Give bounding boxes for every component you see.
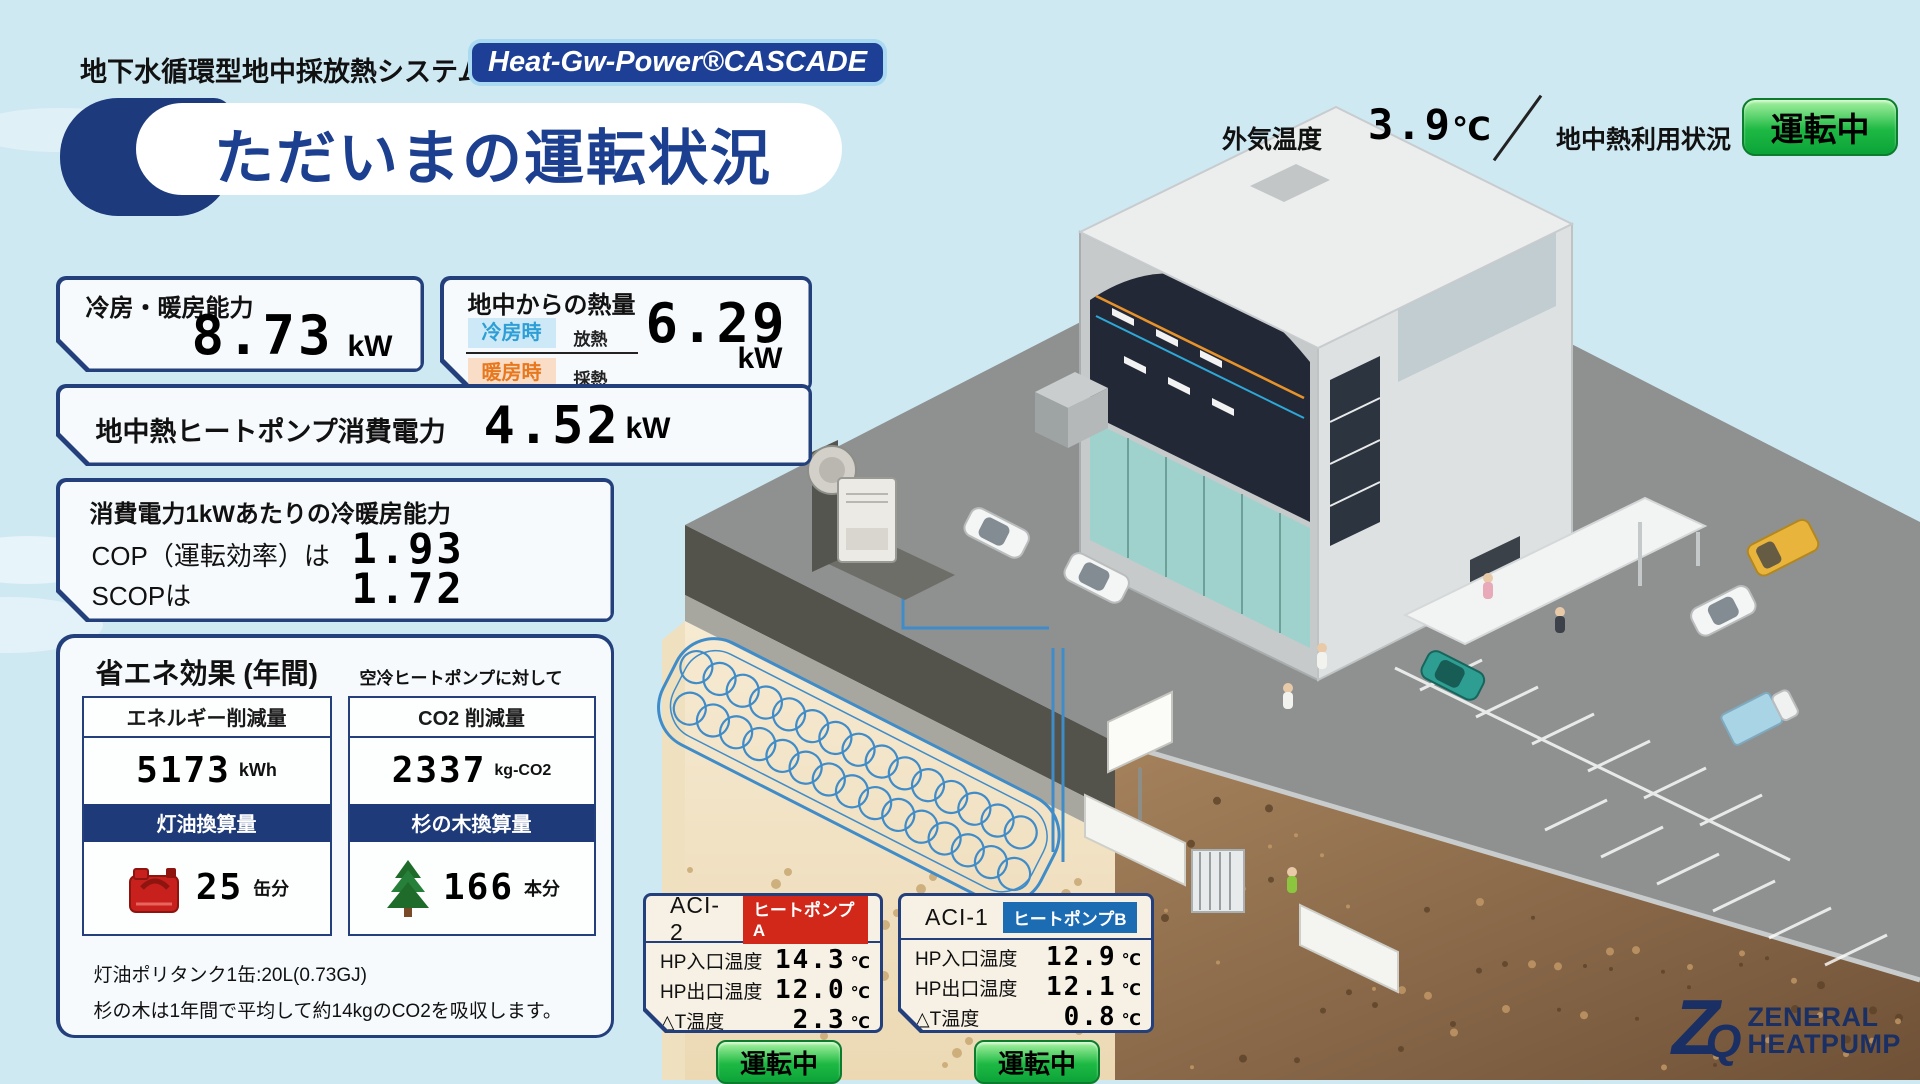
hp-a-outlet-row: HP出口温度 12.0 ℃ [646,973,880,1003]
heat-pump-b-panel: ACI-1 ヒートポンプB HP入口温度 12.9 ℃ HP出口温度 12.1 … [898,893,1154,1033]
cedar-band: 杉の木換算量 [350,804,594,842]
hp-b-inlet-unit: ℃ [1122,950,1141,970]
hp-b-outlet-value: 12.1 [1046,972,1117,1002]
outdoor-temp-unit: ℃ [1452,110,1491,148]
heat-pump-a-panel: ACI-2 ヒートポンプA HP入口温度 14.3 ℃ HP出口温度 12.0 … [643,893,883,1033]
hp-b-deltat-label: △T温度 [915,1004,979,1031]
scop-value: 1.72 [352,564,465,613]
hp-a-inlet-value: 14.3 [775,945,846,975]
hp-b-inlet-label: HP入口温度 [915,944,1017,971]
energy-saving-unit: kWh [239,760,277,781]
energy-saving-column: エネルギー削減量 5173 kWh 灯油換算量 25 缶分 [82,696,332,936]
logo-line1: ZENERAL [1747,1004,1901,1031]
hp-power-panel: 地中熱ヒートポンプ消費電力 4.52 kW [56,384,812,466]
logo-line2: HEATPUMP [1747,1031,1901,1058]
efficiency-panel: 消費電力1kWあたりの冷暖房能力 COP（運転効率）は 1.93 SCOPは 1… [56,478,614,622]
hp-a-deltat-unit: ℃ [851,1013,870,1033]
hp-b-deltat-value: 0.8 [1064,1002,1117,1032]
hp-a-outlet-label: HP出口温度 [660,977,762,1004]
ground-heat-panel: 地中からの熱量 冷房時 放熱 暖房時 採熱 6.29 kW [440,276,812,392]
co2-saving-value: 2337 [392,750,487,791]
co2-saving-header: CO2 削減量 [350,698,594,738]
energy-saving-value: 5173 [136,750,231,791]
heat-pump-b-badge: ヒートポンプB [1003,902,1137,933]
hp-b-inlet-row: HP入口温度 12.9 ℃ [901,940,1151,970]
hp-power-unit: kW [626,412,671,446]
heat-pump-a-id: ACI-2 [670,892,729,946]
hp-b-outlet-unit: ℃ [1122,980,1141,1000]
hp-b-deltat-unit: ℃ [1122,1010,1141,1030]
hp-a-inlet-label: HP入口温度 [660,947,762,974]
logo-q: Q [1706,1018,1742,1064]
hp-b-inlet-value: 12.9 [1046,942,1117,972]
energy-saving-header: エネルギー削減量 [84,698,330,738]
kerosene-band: 灯油換算量 [84,804,330,842]
hp-b-outlet-row: HP出口温度 12.1 ℃ [901,970,1151,1000]
hp-a-deltat-row: △T温度 2.3 ℃ [646,1003,880,1033]
heat-pump-a-status: 運転中 [716,1040,842,1084]
kerosene-can-icon [124,860,186,916]
kerosene-equivalent-value: 25 [196,867,243,908]
outdoor-temp-label: 外気温度 [1222,120,1322,156]
capacity-value: 8.73 [192,304,334,367]
ground-heat-unit: kW [738,342,783,376]
cedar-note: 杉の木は1年間で平均して約14kgのCO2を吸収します。 [94,996,562,1023]
geo-status-label: 地中熱利用状況 [1556,120,1731,156]
capacity-panel: 冷房・暖房能力 8.73 kW [56,276,424,372]
savings-panel: 省エネ効果 (年間) 空冷ヒートポンプに対して エネルギー削減量 5173 kW… [56,634,614,1038]
hp-b-deltat-row: △T温度 0.8 ℃ [901,1000,1151,1030]
mode-divider [466,352,638,354]
hp-b-outlet-label: HP出口温度 [915,974,1017,1001]
system-name-label: 地下水循環型地中採放熱システム [80,50,484,89]
savings-title: 省エネ効果 (年間) [96,652,318,692]
heat-pump-b-status: 運転中 [974,1040,1100,1084]
hp-a-inlet-unit: ℃ [851,953,870,973]
capacity-unit: kW [348,330,393,364]
cooling-mode-badge: 冷房時 [468,318,556,348]
kerosene-note: 灯油ポリタンク1缶:20L(0.73GJ) [94,960,367,987]
brand-badge: Heat-Gw-Power®CASCADE [472,43,883,82]
cedar-tree-icon [383,858,433,918]
cooling-mode-text: 放熱 [574,325,608,350]
page-title: ただいまの運転状況 [214,110,772,197]
zeneral-heatpump-logo: Z Q ZENERAL HEATPUMP [1672,992,1901,1064]
heat-pump-b-id: ACI-1 [925,904,989,931]
kerosene-equivalent-unit: 缶分 [253,875,289,901]
hp-power-label: 地中熱ヒートポンプ消費電力 [96,410,446,449]
heating-mode-badge: 暖房時 [468,358,556,388]
hp-a-deltat-value: 2.3 [793,1005,846,1035]
ground-heat-label: 地中からの熱量 [468,285,636,320]
hp-a-inlet-row: HP入口温度 14.3 ℃ [646,943,880,973]
savings-subtitle: 空冷ヒートポンプに対して [360,664,563,689]
hp-power-value: 4.52 [484,396,621,456]
co2-saving-column: CO2 削減量 2337 kg-CO2 杉の木換算量 166 本分 [348,696,596,936]
hp-a-outlet-value: 12.0 [775,975,846,1005]
cop-label: COP（運転効率）は [92,536,330,573]
outdoor-temp-value: 3.9 [1368,100,1453,149]
co2-saving-unit: kg-CO2 [494,762,551,780]
cedar-equivalent-unit: 本分 [524,875,560,901]
hp-a-outlet-unit: ℃ [851,983,870,1003]
scop-label: SCOPは [92,576,192,613]
heat-pump-a-badge: ヒートポンプA [743,893,868,944]
geo-status-badge: 運転中 [1742,98,1898,156]
cedar-equivalent-value: 166 [443,867,514,908]
hp-a-deltat-label: △T温度 [660,1007,724,1034]
